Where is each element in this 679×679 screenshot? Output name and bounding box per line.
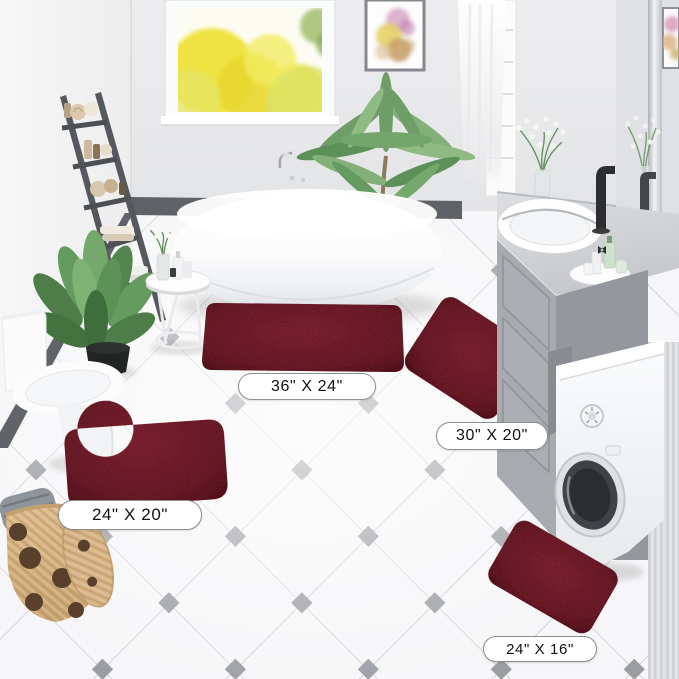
size-label-36x24: 36" X 24" bbox=[238, 373, 376, 400]
size-label-24x20: 24" X 20" bbox=[58, 500, 202, 530]
wall-mirror bbox=[616, 0, 679, 232]
window-with-yellow-trees bbox=[160, 0, 346, 146]
window-sill bbox=[161, 116, 339, 125]
washer-dial bbox=[581, 405, 603, 427]
product-photo-bathroom: 36" X 24" 30" X 20" 24" X 20" 24" X 16" bbox=[0, 0, 679, 679]
mirror-edge bbox=[648, 0, 662, 222]
bathroom-illustration bbox=[0, 0, 679, 679]
washer-drawer bbox=[606, 446, 620, 455]
framed-flower-art bbox=[366, 0, 424, 70]
size-label-30x20: 30" X 20" bbox=[436, 422, 548, 450]
mirror-reflected-picture bbox=[661, 8, 679, 68]
rug-36x24 bbox=[202, 303, 404, 372]
tub-rim bbox=[177, 189, 437, 239]
size-label-24x16: 24" X 16" bbox=[483, 636, 597, 662]
